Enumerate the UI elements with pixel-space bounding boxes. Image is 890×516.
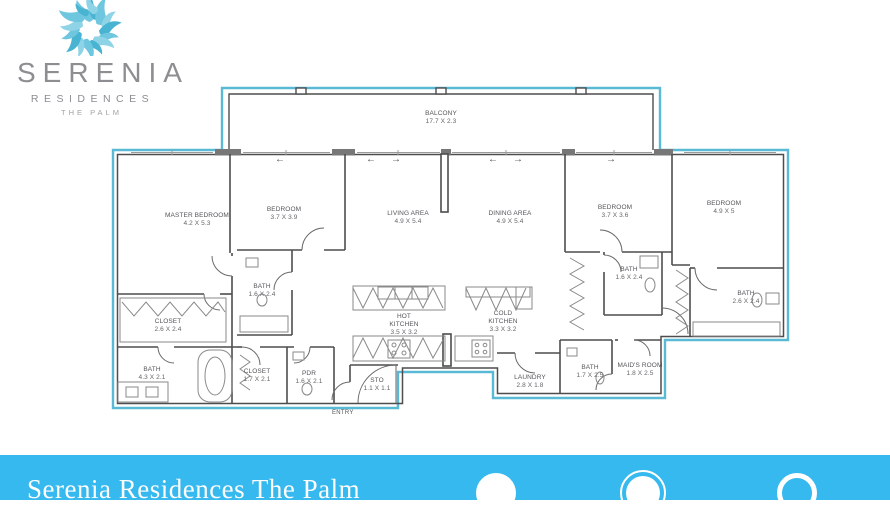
slide-arrow-icon: → bbox=[391, 155, 401, 165]
interior-walls bbox=[118, 154, 783, 404]
nav-dot-ring-icon[interactable] bbox=[620, 470, 666, 516]
slide-arrow-icon: ← bbox=[275, 155, 285, 165]
footer-bar: Serenia Residences The Palm bbox=[0, 455, 890, 500]
room-label-balcony: BALCONY17.7 X 2.3 bbox=[401, 110, 481, 126]
room-label-bath-master: BATH4.3 X 2.1 bbox=[127, 366, 177, 382]
room-label-bath-4: BATH2.6 X 2.4 bbox=[721, 290, 771, 306]
bath-fixtures bbox=[118, 256, 780, 402]
room-label-dining-area: DINING AREA4.9 X 5.4 bbox=[480, 210, 540, 226]
nav-dot-outline-icon[interactable] bbox=[777, 473, 817, 513]
room-label-bath-2: BATH1.6 X 2.4 bbox=[237, 283, 287, 299]
room-label-master-bedroom: MASTER BEDROOM4.2 X 5.3 bbox=[152, 212, 242, 228]
room-label-closet-master: CLOSET2.6 X 2.4 bbox=[138, 318, 198, 334]
room-label-bedroom-2: BEDROOM3.7 X 3.9 bbox=[254, 206, 314, 222]
room-label-cold-kitchen: COLD KITCHEN3.3 X 3.2 bbox=[482, 310, 524, 334]
room-label-bedroom-3: BEDROOM3.7 X 3.6 bbox=[585, 204, 645, 220]
room-label-bath-3: BATH1.6 X 2.4 bbox=[604, 266, 654, 282]
room-label-powder-room: PDR1.6 X 2.1 bbox=[286, 370, 332, 386]
footer-title: Serenia Residences The Palm bbox=[27, 474, 360, 505]
page: { "colors": { "footer_bar": "#36b9ee", "… bbox=[0, 0, 890, 500]
room-label-living-area: LIVING AREA4.9 X 5.4 bbox=[378, 210, 438, 226]
nav-dot-ring-inner bbox=[626, 476, 660, 510]
room-label-hot-kitchen: HOT KITCHEN3.5 X 3.2 bbox=[384, 313, 424, 337]
slide-arrow-icon: ← bbox=[366, 155, 376, 165]
slide-arrow-icon: ← bbox=[488, 155, 498, 165]
room-label-storage: STO1.1 X 1.1 bbox=[357, 377, 397, 393]
room-label-closet-2: CLOSET1.7 X 2.1 bbox=[232, 368, 282, 384]
room-label-laundry: LAUNDRY2.8 X 1.8 bbox=[500, 374, 560, 390]
floor-plan-drawing bbox=[0, 0, 890, 500]
nav-dot-filled-icon[interactable] bbox=[476, 473, 516, 513]
floor-plan: ← ← → ← → → BALCONY17.7 X 2.3 MASTER BED… bbox=[0, 0, 890, 500]
room-label-maids-room: MAID'S ROOM1.8 X 2.5 bbox=[607, 362, 673, 378]
slide-arrow-icon: → bbox=[513, 155, 523, 165]
slide-arrow-icon: → bbox=[606, 155, 616, 165]
entry-label: ENTRY bbox=[332, 410, 354, 416]
room-label-bedroom-4: BEDROOM4.9 X 5 bbox=[694, 200, 754, 216]
